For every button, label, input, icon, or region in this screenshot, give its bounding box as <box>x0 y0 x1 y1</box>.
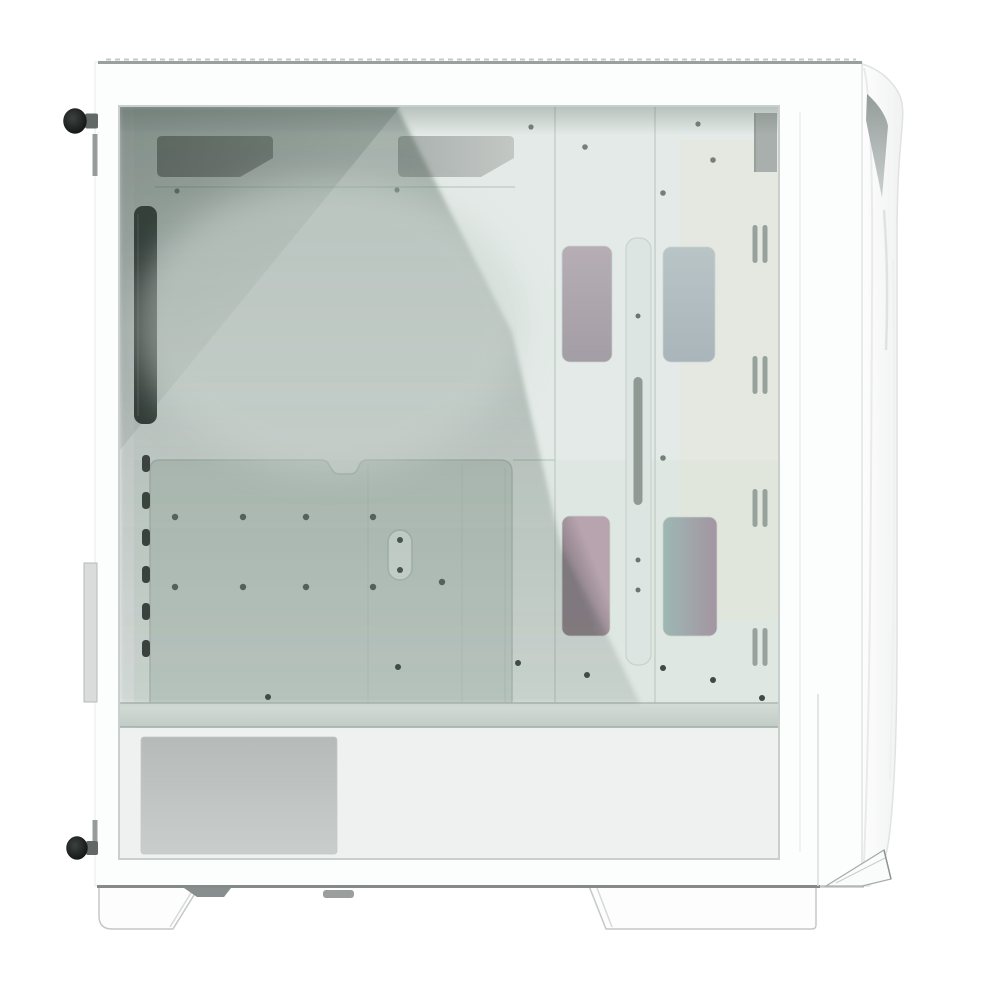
screw-hole <box>636 558 641 563</box>
cage-cutout-upper-right <box>663 247 715 362</box>
vent-slot <box>753 628 758 666</box>
pc-case-side-view <box>0 0 1000 1000</box>
screw-hole <box>660 455 666 461</box>
screw-hole <box>660 190 666 196</box>
vent-slot <box>763 628 768 666</box>
vent-slot <box>753 225 758 263</box>
cage-cutout-upper-left <box>562 246 612 362</box>
vent-slot <box>753 356 758 394</box>
front-foot <box>589 886 816 929</box>
screw-hole <box>710 677 716 683</box>
cage-cutout-lower-right <box>663 517 717 636</box>
rubber-pad <box>323 890 354 898</box>
glass-top-shadow <box>120 107 778 135</box>
vent-slot <box>763 356 768 394</box>
case-floor <box>120 703 778 727</box>
screw-hole <box>759 695 765 701</box>
cable-bar-slot <box>634 377 643 505</box>
screw-hole <box>582 144 588 150</box>
product-photo <box>0 0 1000 1000</box>
hinge-nub <box>93 134 98 176</box>
glass-soft-reflection <box>135 180 525 470</box>
vent-slot <box>753 489 758 527</box>
screw-hole <box>636 588 641 593</box>
screw-hole <box>660 665 666 671</box>
glass-side-panel <box>120 107 778 858</box>
thumbscrew-stem <box>86 841 98 855</box>
thumbscrew-head <box>67 837 88 860</box>
screw-hole <box>636 314 641 319</box>
screw-hole <box>710 157 716 163</box>
vent-slot <box>763 225 768 263</box>
thumbscrew-head <box>64 109 87 134</box>
psu-shroud-vent <box>141 737 337 854</box>
vent-slot <box>763 489 768 527</box>
hinge-nub <box>93 820 98 844</box>
panel-bracket-tab <box>84 563 97 702</box>
thumbscrew-stem <box>85 114 98 129</box>
